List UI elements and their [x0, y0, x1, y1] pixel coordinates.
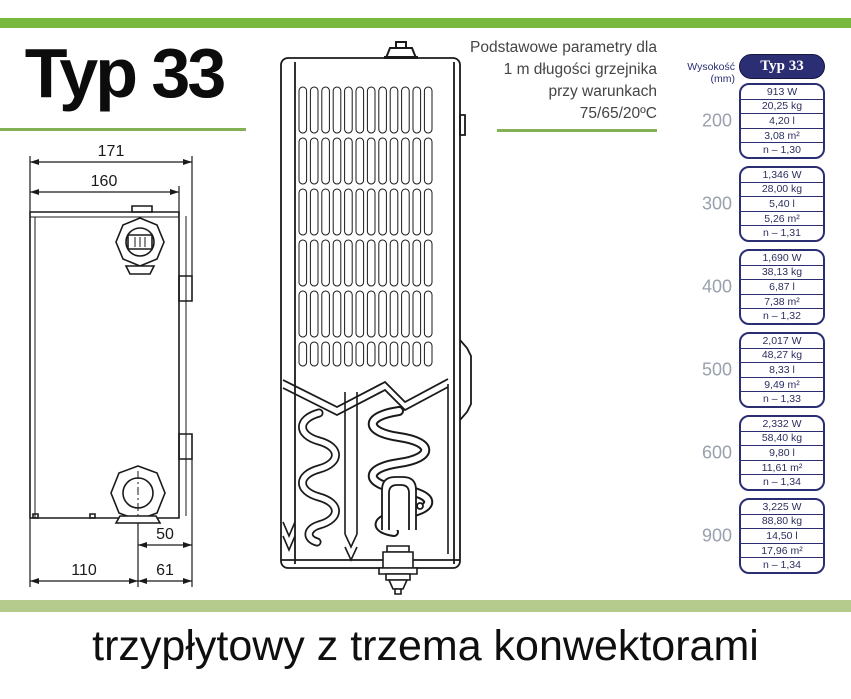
bottom-green-band [0, 600, 851, 612]
height-label: 900 [668, 526, 732, 547]
type-header-pill: Typ 33 [739, 54, 825, 79]
value-cell: 17,96 m² [741, 544, 823, 559]
table-group: 3001,346 W28,00 kg5,40 l5,26 m²n – 1,31 [668, 166, 851, 242]
value-cell: 1,690 W [741, 251, 823, 266]
dim-50-label: 50 [156, 526, 174, 543]
top-vent-cap [384, 42, 418, 58]
drain-valve [379, 546, 417, 594]
value-cell: 5,40 l [741, 197, 823, 212]
table-group: 5002,017 W48,27 kg8,33 l9,49 m²n – 1,33 [668, 332, 851, 408]
cutaway-zigzag [283, 379, 448, 415]
value-cell: n – 1,30 [741, 143, 823, 157]
value-cell-box: 3,225 W88,80 kg14,50 l17,96 m²n – 1,34 [739, 498, 825, 574]
value-cell: 48,27 kg [741, 349, 823, 364]
top-green-bar [0, 18, 851, 28]
radiator-front-cutaway-drawing [268, 28, 480, 603]
grille-slots [299, 87, 432, 366]
table-group: 6002,332 W58,40 kg9,80 l11,61 m²n – 1,34 [668, 415, 851, 491]
height-label: 600 [668, 443, 732, 464]
value-cell: n – 1,34 [741, 558, 823, 572]
bottom-valve [111, 466, 165, 523]
radiator-side-section-drawing: 171 160 [8, 136, 248, 606]
value-cell: 9,80 l [741, 446, 823, 461]
value-cell-box: 1,346 W28,00 kg5,40 l5,26 m²n – 1,31 [739, 166, 825, 242]
value-cell: 913 W [741, 85, 823, 100]
value-cell: 2,332 W [741, 417, 823, 432]
value-cell: 9,49 m² [741, 378, 823, 393]
value-cell: 5,26 m² [741, 212, 823, 227]
spec-table-groups: 200913 W20,25 kg4,20 l3,08 m²n – 1,30300… [668, 83, 851, 574]
value-cell: 3,08 m² [741, 129, 823, 144]
spec-table: Wysokość (mm) Typ 33 200913 W20,25 kg4,2… [668, 52, 851, 581]
value-cell-box: 2,017 W48,27 kg8,33 l9,49 m²n – 1,33 [739, 332, 825, 408]
height-label: 300 [668, 194, 732, 215]
dim-171-label: 171 [98, 143, 125, 160]
value-cell: 28,00 kg [741, 183, 823, 198]
parameters-underline [497, 129, 657, 132]
table-group: 4001,690 W38,13 kg6,87 l7,38 m²n – 1,32 [668, 249, 851, 325]
value-cell: 3,225 W [741, 500, 823, 515]
dim-160-label: 160 [91, 173, 118, 190]
height-label: 400 [668, 277, 732, 298]
page-title: Typ 33 [0, 33, 248, 113]
dim-61-label: 61 [156, 562, 174, 579]
value-cell: 2,017 W [741, 334, 823, 349]
value-cell: 58,40 kg [741, 432, 823, 447]
spec-table-header: Wysokość (mm) Typ 33 [668, 52, 851, 83]
title-underline [0, 128, 246, 131]
value-cell: 38,13 kg [741, 266, 823, 281]
value-cell: n – 1,32 [741, 309, 823, 323]
value-cell: 11,61 m² [741, 461, 823, 476]
table-group: 9003,225 W88,80 kg14,50 l17,96 m²n – 1,3… [668, 498, 851, 574]
value-cell: 20,25 kg [741, 100, 823, 115]
value-cell: 8,33 l [741, 363, 823, 378]
value-cell: 1,346 W [741, 168, 823, 183]
top-valve [116, 218, 164, 274]
value-cell: 88,80 kg [741, 515, 823, 530]
value-cell-box: 1,690 W38,13 kg6,87 l7,38 m²n – 1,32 [739, 249, 825, 325]
value-cell: 4,20 l [741, 114, 823, 129]
value-cell: 6,87 l [741, 280, 823, 295]
convector-fins [283, 384, 448, 560]
value-cell-box: 913 W20,25 kg4,20 l3,08 m²n – 1,30 [739, 83, 825, 159]
bottom-caption: trzypłytowy z trzema konwektorami [0, 622, 851, 671]
height-label: 200 [668, 111, 732, 132]
value-cell: n – 1,31 [741, 226, 823, 240]
value-cell: n – 1,33 [741, 392, 823, 406]
value-cell-box: 2,332 W58,40 kg9,80 l11,61 m²n – 1,34 [739, 415, 825, 491]
dim-110-label: 110 [71, 562, 97, 579]
height-label: 500 [668, 360, 732, 381]
table-group: 200913 W20,25 kg4,20 l3,08 m²n – 1,30 [668, 83, 851, 159]
value-cell: 7,38 m² [741, 295, 823, 310]
value-cell: 14,50 l [741, 529, 823, 544]
height-column-header: Wysokość (mm) [668, 61, 735, 85]
value-cell: n – 1,34 [741, 475, 823, 489]
